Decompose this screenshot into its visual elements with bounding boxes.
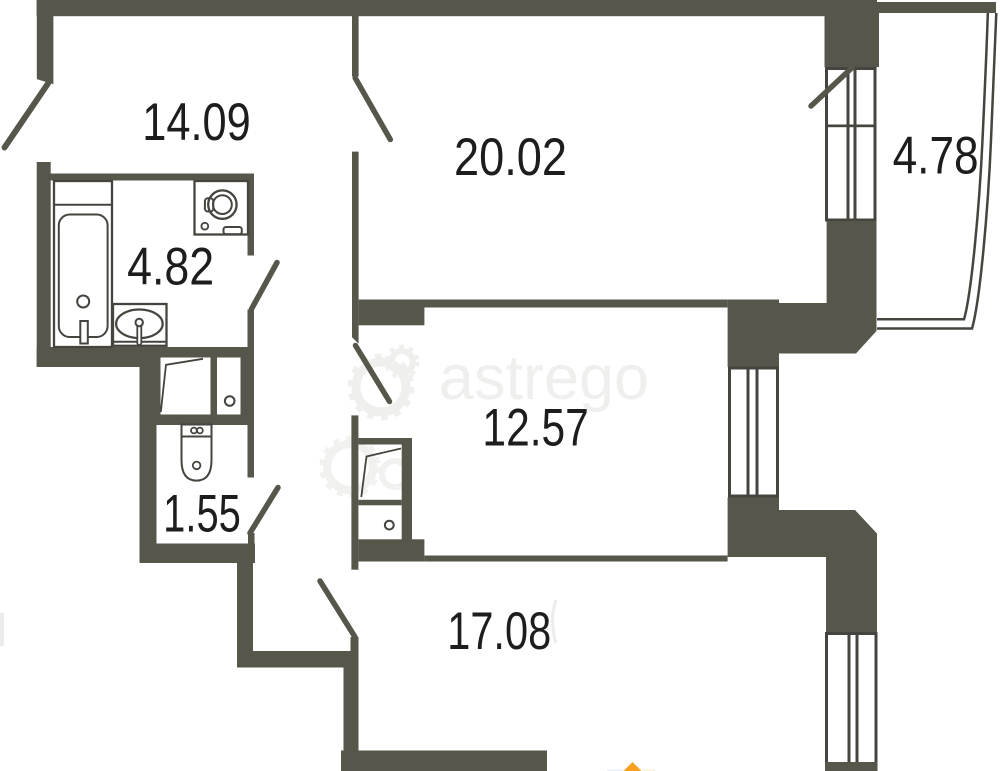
svg-text:17.08: 17.08 bbox=[447, 602, 551, 661]
svg-text:4.78: 4.78 bbox=[893, 127, 979, 186]
svg-text:12.57: 12.57 bbox=[482, 399, 588, 457]
svg-text:14.09: 14.09 bbox=[142, 93, 250, 152]
svg-text:20.02: 20.02 bbox=[454, 128, 567, 187]
svg-text:4.82: 4.82 bbox=[127, 238, 214, 296]
svg-text:1.55: 1.55 bbox=[163, 484, 241, 543]
